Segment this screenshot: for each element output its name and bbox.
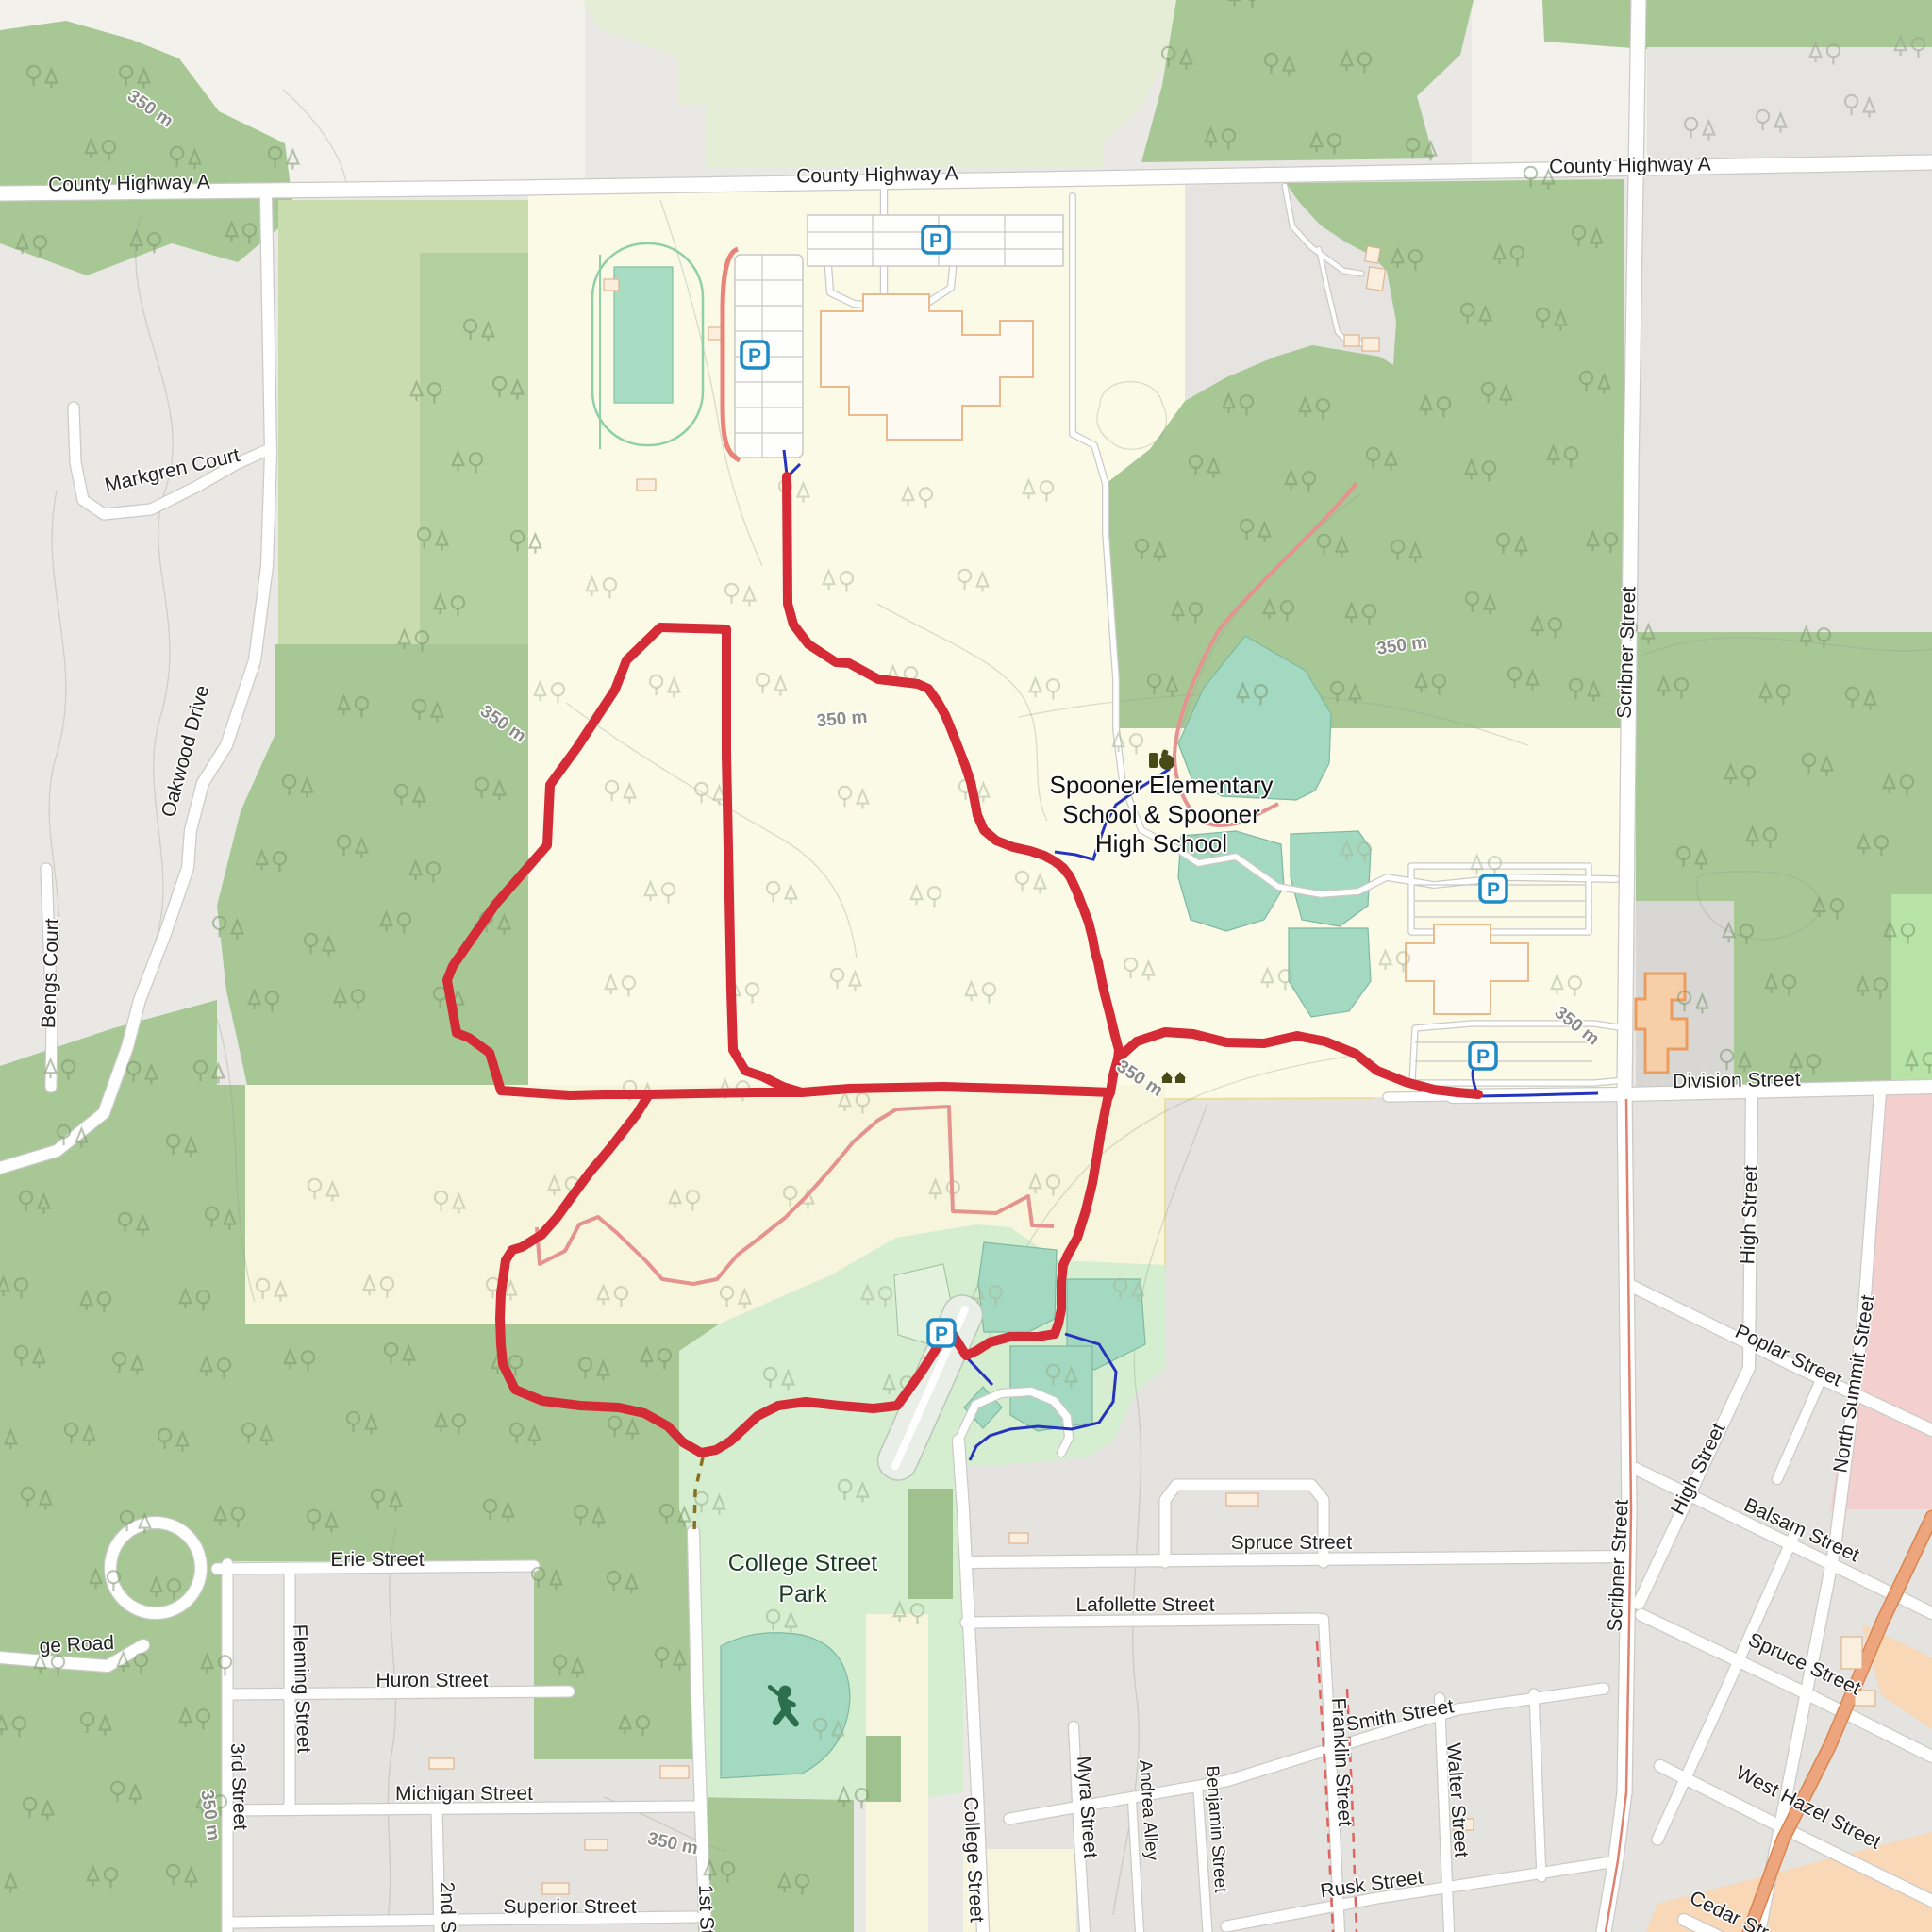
svg-text:County Highway A: County Highway A [1549, 154, 1711, 178]
svg-text:Scribner Street: Scribner Street [1614, 586, 1641, 719]
svg-text:Bengs Court: Bengs Court [38, 918, 63, 1029]
svg-text:School & Spooner: School & Spooner [1062, 800, 1260, 828]
svg-text:1st Street: 1st Street [694, 1884, 719, 1932]
svg-text:Huron Street: Huron Street [375, 1670, 488, 1691]
svg-text:Erie Street: Erie Street [330, 1549, 424, 1571]
svg-text:P: P [929, 230, 942, 252]
svg-text:Spruce Street: Spruce Street [1231, 1532, 1353, 1554]
svg-text:County Highway A: County Highway A [48, 172, 210, 196]
svg-text:2nd Street: 2nd Street [436, 1881, 460, 1932]
svg-text:High School: High School [1095, 829, 1227, 858]
svg-text:Superior Street: Superior Street [503, 1896, 636, 1918]
svg-text:County Highway A: County Highway A [796, 163, 958, 188]
svg-text:College Street: College Street [728, 1550, 877, 1576]
svg-text:ge Road: ge Road [39, 1632, 115, 1657]
svg-text:High Street: High Street [1737, 1165, 1762, 1265]
svg-text:3rd Street: 3rd Street [226, 1742, 251, 1830]
svg-text:Park: Park [778, 1581, 827, 1607]
svg-text:P: P [935, 1324, 948, 1345]
svg-text:Spooner Elementary: Spooner Elementary [1049, 771, 1273, 799]
svg-text:Lafollette Street: Lafollette Street [1075, 1594, 1214, 1616]
svg-text:Fleming Street: Fleming Street [289, 1624, 315, 1753]
svg-text:P: P [748, 345, 761, 367]
svg-text:P: P [1487, 879, 1500, 901]
svg-text:Michigan Street: Michigan Street [395, 1783, 533, 1805]
svg-text:Division Street: Division Street [1673, 1069, 1801, 1092]
svg-text:P: P [1476, 1046, 1490, 1068]
